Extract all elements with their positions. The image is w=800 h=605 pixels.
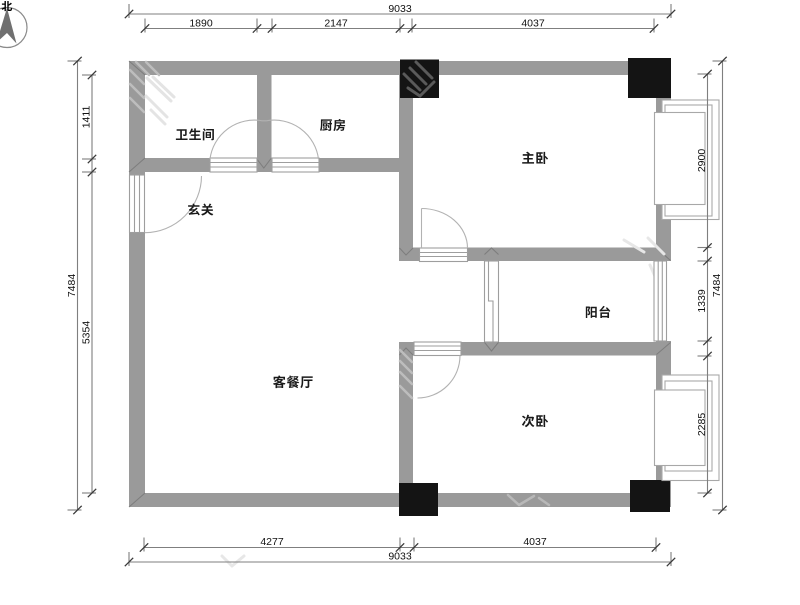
svg-text:1411: 1411 — [81, 106, 93, 129]
svg-text:1890: 1890 — [189, 18, 213, 30]
svg-text:1339: 1339 — [696, 289, 708, 313]
svg-text:4037: 4037 — [521, 18, 545, 30]
svg-text:2285: 2285 — [696, 413, 708, 437]
svg-text:4037: 4037 — [523, 536, 547, 548]
svg-text:9033: 9033 — [388, 3, 412, 15]
svg-text:2147: 2147 — [324, 18, 348, 30]
svg-text:7484: 7484 — [711, 274, 723, 298]
svg-text:2900: 2900 — [696, 149, 708, 173]
svg-text:4277: 4277 — [260, 536, 284, 548]
svg-text:7484: 7484 — [66, 274, 78, 298]
svg-text:5354: 5354 — [81, 321, 93, 345]
svg-text:9033: 9033 — [388, 551, 412, 563]
